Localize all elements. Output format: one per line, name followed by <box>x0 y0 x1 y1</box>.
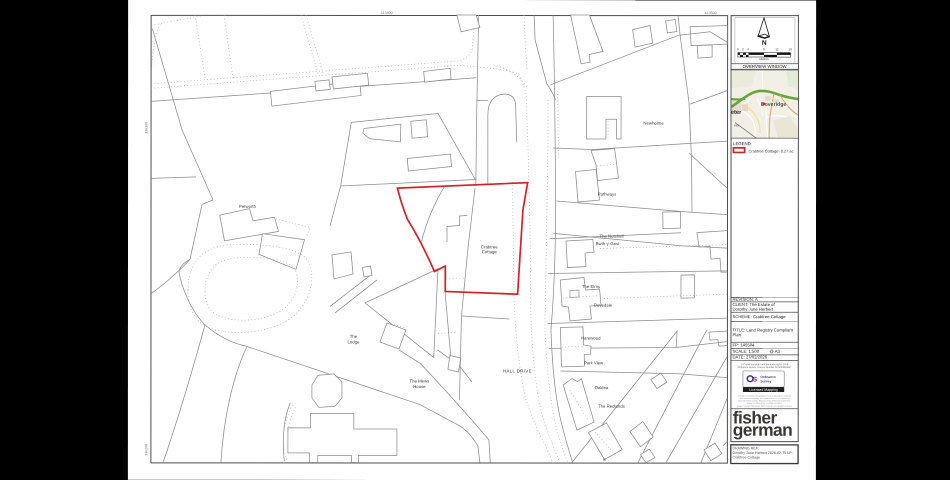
svg-text:The Redlands: The Redlands <box>598 404 625 409</box>
svg-text:SCALE:: SCALE: <box>732 349 747 354</box>
svg-text:FP: 145504: FP: 145504 <box>732 342 755 347</box>
svg-text:Crabtree Cottage- 0.27 ac: Crabtree Cottage- 0.27 ac <box>749 149 794 154</box>
svg-text:SCHEME: Crabtree Cottage: SCHEME: Crabtree Cottage <box>732 314 786 319</box>
svg-text:Oaklea: Oaklea <box>595 385 609 390</box>
svg-text:HALL DRIVE: HALL DRIVE <box>503 369 532 374</box>
svg-text:Metres: Metres <box>760 57 770 61</box>
svg-text:336300: 336300 <box>145 122 149 134</box>
svg-text:12: 12 <box>775 47 779 51</box>
svg-text:eter: eter <box>731 110 742 116</box>
svg-text:Crabtree Cottage: Crabtree Cottage <box>732 455 760 459</box>
svg-text:Hill: Hill <box>734 124 739 128</box>
svg-text:413400: 413400 <box>381 11 393 15</box>
svg-text:LEGEND:: LEGEND: <box>733 141 752 146</box>
svg-text:The Mews: The Mews <box>410 378 430 383</box>
svg-text:Newholme: Newholme <box>643 121 664 126</box>
svg-text:N: N <box>762 40 767 47</box>
svg-text:OVERVIEW WINDOW: OVERVIEW WINDOW <box>743 64 788 69</box>
svg-text:1:500: 1:500 <box>748 349 759 354</box>
svg-text:336200: 336200 <box>144 444 148 456</box>
svg-text:TITLE: Land Registry Compliant: TITLE: Land Registry Compliant <box>732 327 793 332</box>
svg-text:DRAWING REF:: DRAWING REF: <box>732 446 758 450</box>
svg-text:Cottage: Cottage <box>482 249 498 254</box>
svg-text:Ordnance Survey Licence Number: Ordnance Survey Licence Number AC0000809… <box>738 366 792 369</box>
svg-text:The Nutshell: The Nutshell <box>599 234 623 239</box>
svg-text:Dorothy June Herbert: Dorothy June Herbert <box>732 307 773 312</box>
svg-text:Survey on behalf of the Contro: Survey on behalf of the Controller of HM… <box>747 402 783 405</box>
svg-text:Pathways: Pathways <box>598 192 617 197</box>
svg-text:The: The <box>350 334 358 339</box>
svg-text:Petworth: Petworth <box>239 204 257 209</box>
svg-text:The Elms: The Elms <box>582 284 600 289</box>
svg-text:413500: 413500 <box>705 11 717 15</box>
svg-text:Survey: Survey <box>760 379 771 383</box>
svg-text:Dorothy June Herbert 2026-02-7: Dorothy June Herbert 2026-02-75 LP- <box>732 451 793 455</box>
svg-text:S: S <box>753 377 758 384</box>
svg-text:german: german <box>733 420 793 440</box>
svg-text:16: 16 <box>789 47 793 51</box>
svg-text:Harewood: Harewood <box>581 336 601 341</box>
svg-text:Dovedale: Dovedale <box>594 303 613 308</box>
svg-text:Park View: Park View <box>584 360 604 365</box>
svg-text:Lodge: Lodge <box>347 339 360 344</box>
svg-text:Bwth-y-Gest: Bwth-y-Gest <box>596 241 620 246</box>
svg-text:House: House <box>413 384 426 389</box>
svg-text:Licensed Mapping: Licensed Mapping <box>749 388 777 392</box>
svg-text:DATE: 27/02/2026: DATE: 27/02/2026 <box>732 355 767 360</box>
svg-text:Plan: Plan <box>732 332 741 337</box>
svg-text:@ A3: @ A3 <box>769 349 780 354</box>
